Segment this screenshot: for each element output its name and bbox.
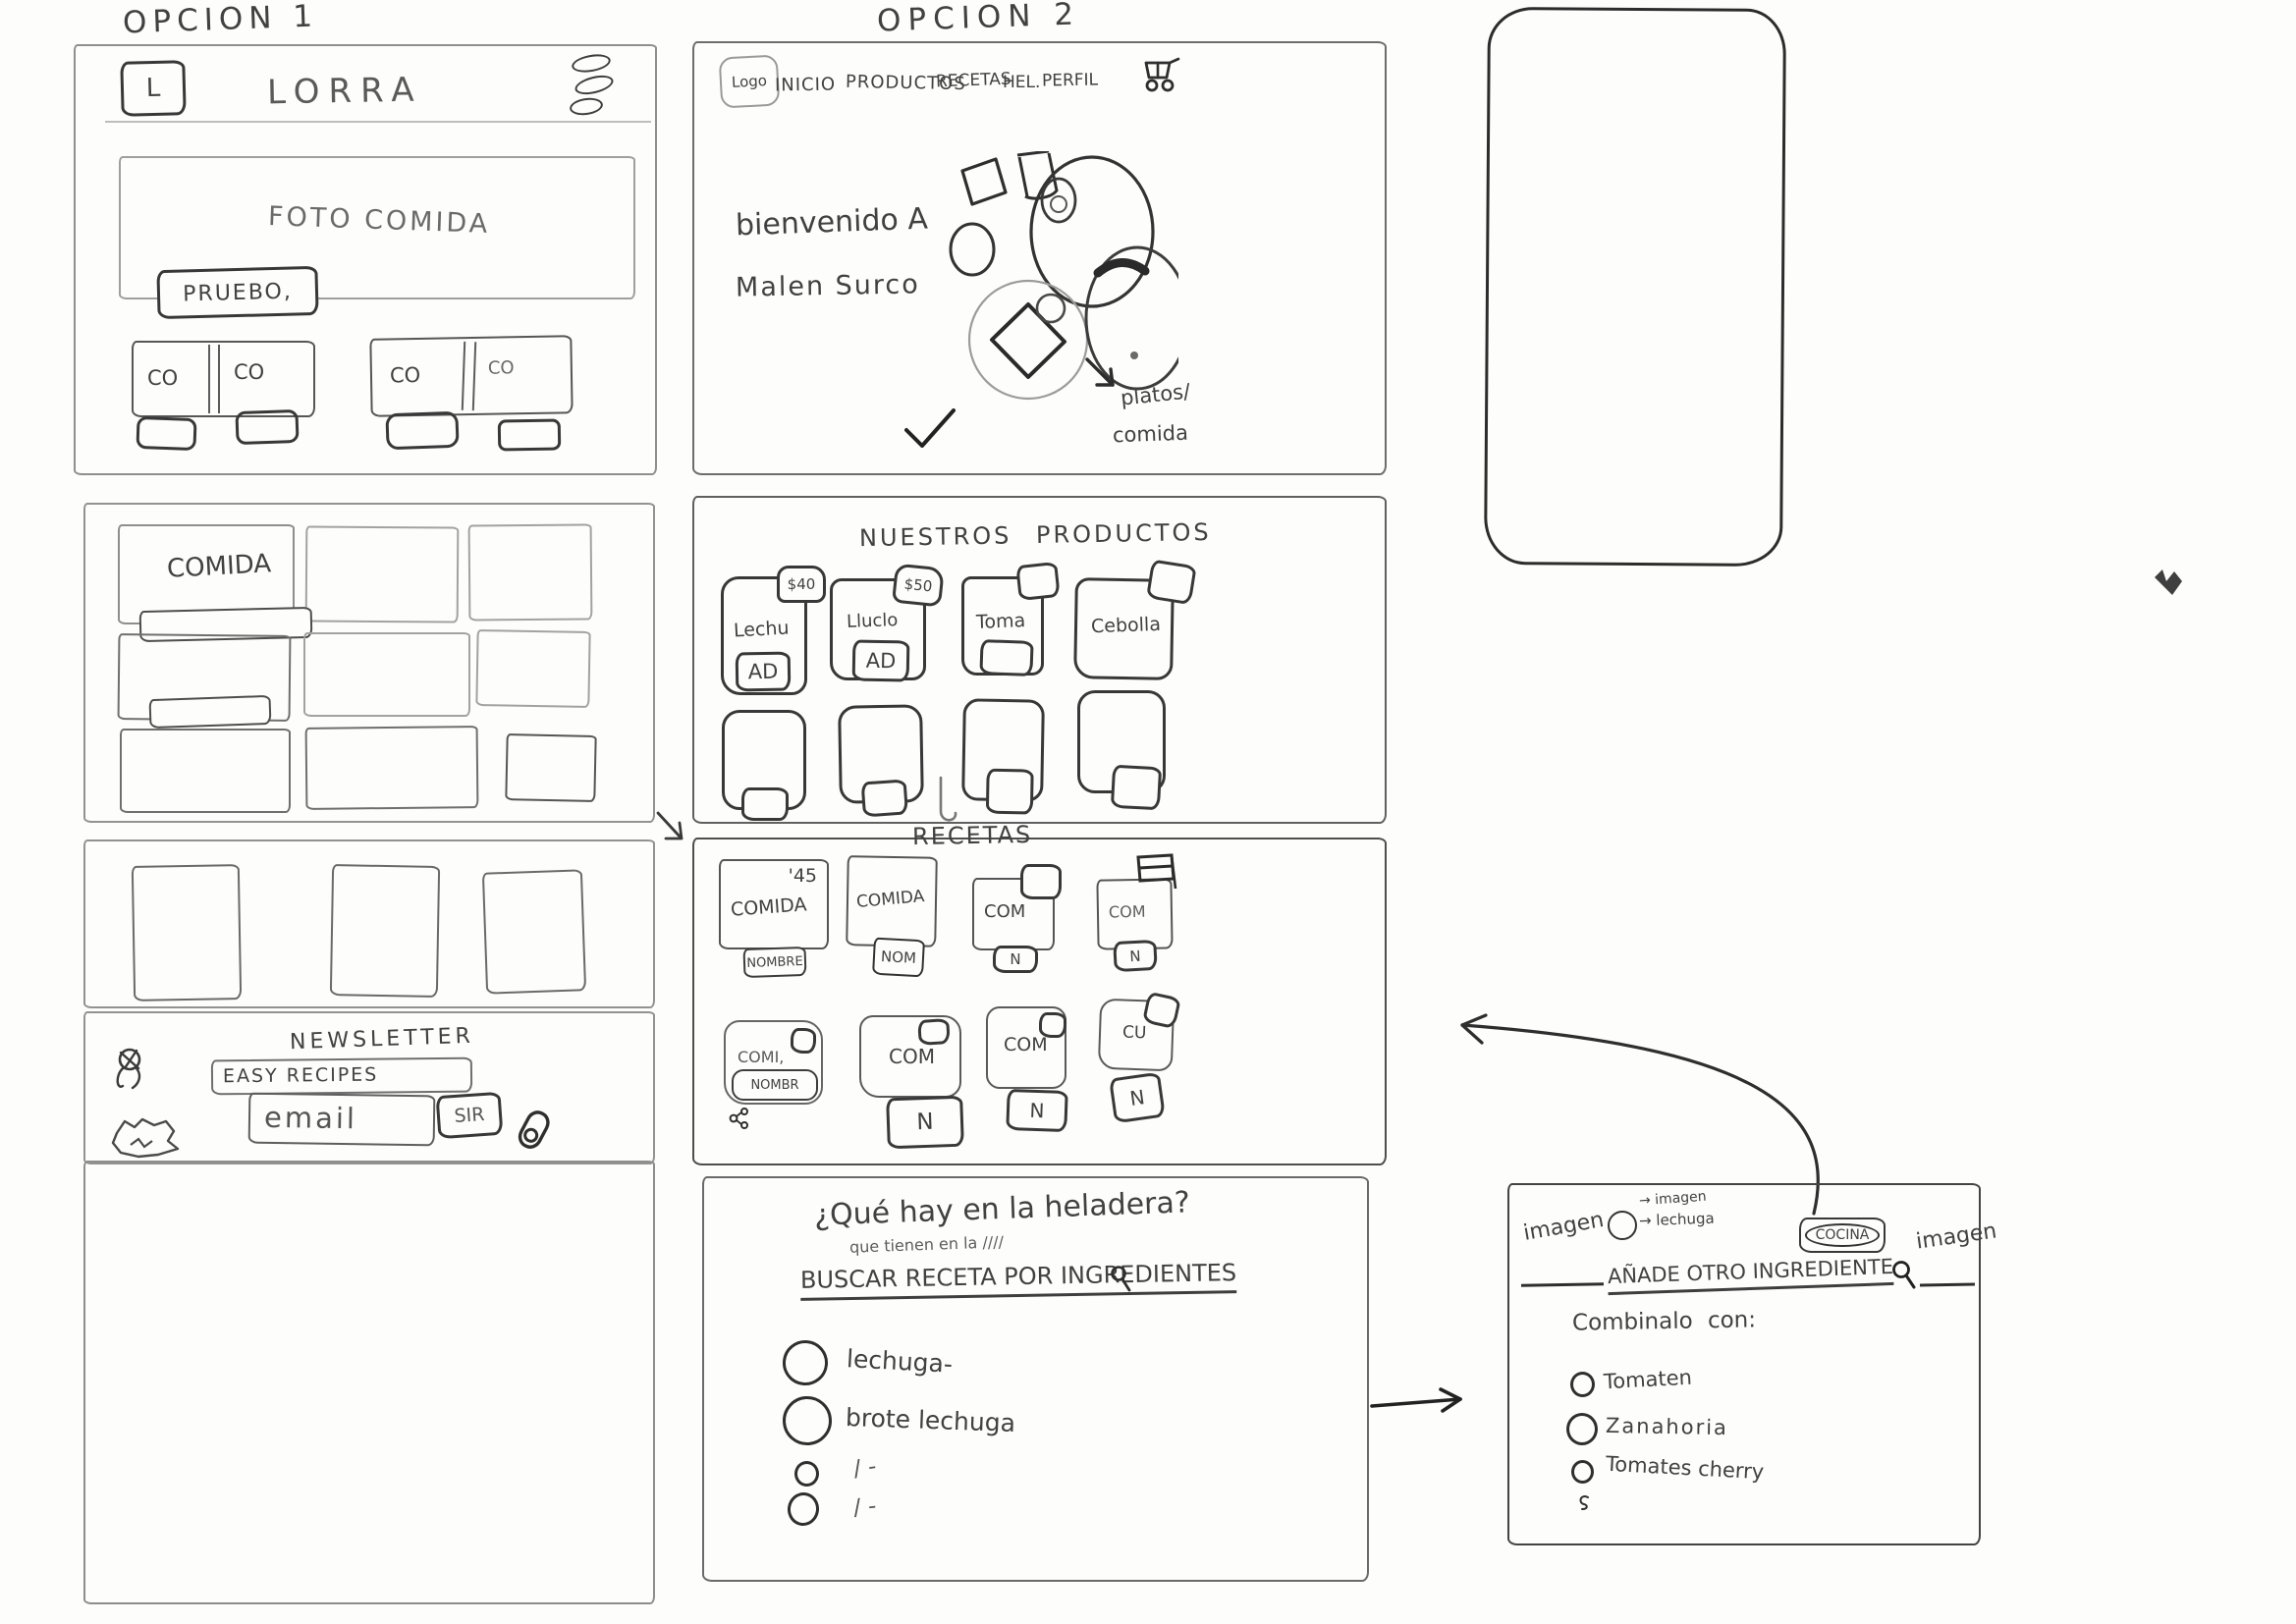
recipe-card[interactable]: CU xyxy=(1098,999,1175,1072)
newsletter-submit-button[interactable]: SIR xyxy=(436,1092,504,1139)
recipe-corner-tag xyxy=(1039,1012,1066,1038)
product-add-button[interactable]: AD xyxy=(852,639,910,681)
brand-title: LORRA xyxy=(267,71,423,113)
newsletter-email-value: email xyxy=(264,1101,357,1135)
newsletter-title: NEWSLETTER xyxy=(290,1024,475,1056)
flag-tag-icon xyxy=(1132,853,1179,891)
popup-note-lechuga: → lechuga xyxy=(1639,1210,1715,1230)
gallery-cell[interactable] xyxy=(305,525,460,623)
welcome-line-1: bienvenido A xyxy=(735,202,928,244)
food-scribble-icon xyxy=(109,1111,188,1161)
gallery-cell[interactable] xyxy=(505,733,596,802)
gallery-cell-tag[interactable] xyxy=(149,695,272,729)
ingredient-option[interactable]: brote lechuga xyxy=(846,1403,1016,1437)
recipe-name: COMIDA xyxy=(855,887,925,912)
product-card[interactable] xyxy=(961,698,1045,801)
option1-strip-frame xyxy=(83,839,655,1008)
recipe-badge: '45 xyxy=(789,865,817,887)
product-price-badge: $40 xyxy=(777,566,826,603)
recipe-card[interactable]: '45 COMIDA xyxy=(719,859,829,949)
category-card-label: CO xyxy=(147,366,178,390)
option2-title: OPCION 2 xyxy=(876,0,1080,39)
menu-kebab-icon[interactable] xyxy=(572,55,614,120)
welcome-line-2: Malen Surco xyxy=(736,269,920,302)
title-dash-right xyxy=(1920,1283,1975,1287)
category-card-pair[interactable]: CO CO xyxy=(369,335,573,417)
product-card[interactable] xyxy=(722,710,806,810)
option1-newsletter-frame: NEWSLETTER EASY RECIPES email SIR xyxy=(83,1011,655,1164)
ingredient-radio[interactable] xyxy=(781,1394,833,1446)
logo-letter: L xyxy=(145,74,160,103)
card-mini-button[interactable] xyxy=(136,416,196,451)
product-card[interactable] xyxy=(1077,690,1166,793)
recipe-name-label: NOM xyxy=(881,947,917,967)
product-add-button[interactable] xyxy=(861,779,908,817)
product-add-button[interactable] xyxy=(986,769,1034,815)
product-card[interactable]: Cebolla xyxy=(1073,577,1175,680)
card-divider xyxy=(208,345,220,413)
recipe-name-button[interactable]: NOM xyxy=(872,938,925,978)
option2-products-frame: NUESTROS PRODUCTOS Lechu $40 AD Lluclo $… xyxy=(692,496,1387,824)
ingredient-circle-icon[interactable] xyxy=(1608,1211,1637,1240)
ingredient-radio[interactable] xyxy=(786,1490,821,1528)
product-card[interactable]: Lechu $40 AD xyxy=(721,576,807,695)
recipe-name-button[interactable]: N xyxy=(1109,1072,1166,1124)
u-pen-mark xyxy=(931,776,960,829)
combine-radio[interactable] xyxy=(1571,1460,1594,1484)
card-mini-button[interactable] xyxy=(385,411,459,451)
category-card-label: CO xyxy=(390,363,421,388)
hero-cta-label: PRUEBO, xyxy=(183,279,293,306)
logo-box[interactable]: L xyxy=(120,60,186,117)
combine-label: Combinalo con: xyxy=(1572,1307,1756,1335)
category-card-label: CO xyxy=(488,357,515,378)
cocina-button[interactable]: COCINA xyxy=(1799,1218,1886,1253)
ingredient-option[interactable]: lechuga- xyxy=(846,1344,953,1379)
arrow-down-right-small xyxy=(650,809,697,856)
recipe-name-button[interactable]: N xyxy=(1113,940,1158,972)
plates-sketch xyxy=(933,151,1178,405)
popup-left-image-label: imagen xyxy=(1521,1208,1606,1246)
product-add-button[interactable] xyxy=(1111,765,1162,811)
gallery-cell[interactable] xyxy=(120,729,291,813)
product-card[interactable]: Toma xyxy=(961,576,1044,676)
checkmark-icon xyxy=(901,405,959,452)
arrow-right-icon xyxy=(1368,1382,1478,1420)
recipe-name-button[interactable]: N xyxy=(993,946,1038,973)
sketch-page: OPCION 1 L LORRA FOTO COMIDA PRUEBO, CO … xyxy=(0,0,2296,1624)
option2-home-frame: Logo INICIO PRODUCTOS RECETAS HEL. PERFI… xyxy=(692,41,1387,475)
pin-clip-icon xyxy=(514,1108,553,1157)
product-name: Toma xyxy=(976,610,1026,633)
option1-gallery-frame: COMIDA xyxy=(83,503,655,823)
fridge-subtitle: que tienen en la //// xyxy=(849,1232,1005,1256)
product-add-button[interactable] xyxy=(979,639,1033,677)
phone-outline xyxy=(1484,7,1786,567)
person-scribble-icon xyxy=(113,1047,150,1096)
product-name: Lechu xyxy=(733,618,790,642)
gallery-cell[interactable] xyxy=(468,523,593,621)
nav-logo[interactable]: Logo xyxy=(719,54,781,108)
newsletter-topic-input[interactable]: EASY RECIPES xyxy=(211,1057,472,1096)
ingredient-radio[interactable] xyxy=(794,1461,819,1487)
recipe-corner-tag xyxy=(1020,864,1062,899)
recipe-card[interactable]: COMIDA xyxy=(846,855,938,947)
recipe-name: CU xyxy=(1122,1023,1147,1044)
recipe-inner-bar[interactable]: NOMBR xyxy=(732,1069,818,1101)
cart-icon[interactable] xyxy=(1138,53,1183,96)
nav-item-recetas[interactable]: RECETAS xyxy=(936,70,1011,92)
product-add-label: AD xyxy=(866,649,897,674)
ingredient-option[interactable]: / - xyxy=(851,1454,878,1483)
recipe-name: COMIDA xyxy=(730,893,807,920)
recipe-name-button[interactable]: N xyxy=(886,1096,964,1150)
search-icon[interactable] xyxy=(1109,1265,1134,1296)
recipe-name-label: NOMBRE xyxy=(746,954,803,971)
fridge-title: ¿Qué hay en la heladera? xyxy=(814,1185,1191,1232)
recipe-name-label: N xyxy=(916,1110,934,1136)
title-dash-left xyxy=(1521,1282,1604,1286)
product-name: Cebolla xyxy=(1091,614,1162,637)
nav-logo-label: Logo xyxy=(732,72,768,91)
card-mini-button[interactable] xyxy=(235,409,299,445)
product-name: Lluclo xyxy=(847,610,899,632)
recipe-name-label: N xyxy=(1129,947,1141,965)
nav-item-hel[interactable]: HEL. xyxy=(1003,73,1040,92)
products-title: NUESTROS PRODUCTOS xyxy=(859,518,1212,552)
nav-item-perfil[interactable]: PERFIL xyxy=(1042,71,1098,91)
option1-title: OPCION 1 xyxy=(122,0,318,40)
add-ingredient-popup: imagen → imagen → lechuga COCINA imagen … xyxy=(1507,1183,1981,1545)
recipe-name-button[interactable]: NOMBRE xyxy=(742,947,806,978)
popup-note-imagen: → imagen xyxy=(1639,1189,1708,1210)
combine-option[interactable]: Tomaten xyxy=(1603,1366,1692,1394)
gallery-cell[interactable] xyxy=(475,629,590,708)
stray-squiggle xyxy=(2153,568,2190,599)
card-mini-button[interactable] xyxy=(498,418,562,451)
gallery-cell[interactable] xyxy=(303,632,470,717)
product-price-badge: $50 xyxy=(892,563,945,607)
nav-item-inicio[interactable]: INICIO xyxy=(775,74,836,95)
recipe-name: COM xyxy=(1004,1034,1048,1056)
ingredient-option[interactable]: / - xyxy=(852,1493,878,1521)
recipe-name: COMI, xyxy=(738,1048,784,1066)
product-corner-tag xyxy=(1146,559,1197,605)
recipe-name-label: N xyxy=(1010,950,1020,968)
combine-radio[interactable] xyxy=(1570,1372,1595,1397)
cocina-label: COCINA xyxy=(1805,1223,1881,1247)
option1-header-frame: L LORRA FOTO COMIDA PRUEBO, CO CO CO CO xyxy=(74,44,657,475)
option2-recipes-frame: RECETAS '45 COMIDA NOMBRE COMIDA NOM COM… xyxy=(692,838,1387,1165)
recipe-inner-label: NOMBR xyxy=(750,1078,798,1093)
recipe-card[interactable]: COM xyxy=(986,1006,1066,1089)
option1-footer-frame xyxy=(83,1161,655,1604)
category-card-label: CO xyxy=(234,360,264,384)
recipe-name: COM xyxy=(1109,902,1146,922)
newsletter-email-input[interactable]: email xyxy=(248,1093,436,1147)
share-icon[interactable] xyxy=(729,1107,750,1130)
recipe-card[interactable]: COM xyxy=(859,1015,961,1098)
recipe-corner-tag xyxy=(1142,992,1181,1029)
popup-title: AÑADE OTRO INGREDIENTE xyxy=(1608,1255,1894,1295)
hero-label: FOTO COMIDA xyxy=(268,201,491,240)
product-corner-tag xyxy=(1015,562,1061,601)
recipe-corner-tag xyxy=(791,1028,816,1054)
gallery-cell[interactable] xyxy=(305,726,479,810)
gallery-cell-label: COMIDA xyxy=(166,549,272,584)
ingredient-radio[interactable] xyxy=(781,1338,831,1388)
recipe-name-label: N xyxy=(1029,1099,1045,1123)
search-icon[interactable] xyxy=(1890,1260,1918,1293)
category-card-pair[interactable]: CO CO xyxy=(132,341,315,417)
fridge-search-label: BUSCAR RECETA POR INGREDIENTES xyxy=(800,1259,1237,1301)
product-add-button[interactable] xyxy=(741,787,789,821)
recipe-name-button[interactable]: N xyxy=(1006,1089,1067,1132)
product-add-button[interactable]: AD xyxy=(736,652,792,692)
recipe-name: COM xyxy=(984,901,1025,922)
strip-box[interactable] xyxy=(132,864,242,1001)
product-price: $40 xyxy=(788,575,816,593)
product-price: $50 xyxy=(903,575,933,596)
header-divider xyxy=(105,121,651,123)
strip-box[interactable] xyxy=(482,869,586,994)
recipe-name: COM xyxy=(889,1045,935,1068)
strip-box[interactable] xyxy=(330,864,440,998)
combine-option[interactable]: Tomates cherry xyxy=(1605,1452,1764,1484)
popup-right-image-label: imagen xyxy=(1915,1218,1998,1254)
hero-cta-button[interactable]: PRUEBO, xyxy=(156,266,318,319)
dishes-note-2: comida xyxy=(1113,421,1189,448)
option2-fridge-frame: ¿Qué hay en la heladera? que tienen en l… xyxy=(702,1176,1369,1582)
card-divider xyxy=(462,342,476,410)
recipe-name-label: N xyxy=(1128,1085,1146,1110)
newsletter-submit-label: SIR xyxy=(454,1104,485,1127)
combine-option[interactable]: Zanahoria xyxy=(1606,1414,1728,1439)
combine-radio[interactable] xyxy=(1566,1413,1598,1445)
product-add-label: AD xyxy=(748,660,779,684)
newsletter-topic-value: EASY RECIPES xyxy=(223,1064,379,1088)
product-card[interactable] xyxy=(838,704,924,803)
recipe-card[interactable]: COMI, NOMBR xyxy=(724,1020,823,1105)
recipe-corner-tag xyxy=(917,1018,951,1046)
product-card[interactable]: Lluclo $50 AD xyxy=(830,578,926,680)
stray-g-mark xyxy=(1576,1493,1592,1511)
